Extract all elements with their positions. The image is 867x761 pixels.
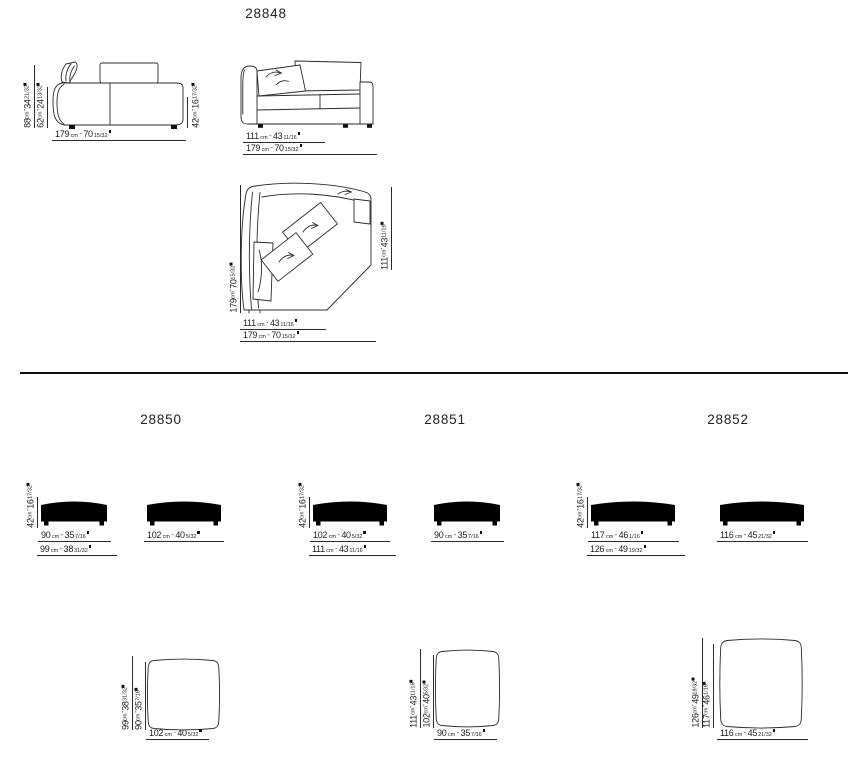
dim-part: 24 xyxy=(36,99,46,108)
dim-part: 7/16 xyxy=(468,534,479,540)
dim-ottoman-height: 42cm-1617/32 xyxy=(573,483,588,528)
dim-part: cm xyxy=(704,707,710,714)
dim-part: 90 xyxy=(134,721,144,730)
dim-part: 70 xyxy=(83,129,92,139)
dim-ottoman-width: 102cm-405/32 xyxy=(144,529,224,542)
dim-part: 11/16 xyxy=(283,135,296,141)
ottoman-side-view-drawing xyxy=(40,497,108,528)
inch-mark xyxy=(773,729,776,732)
dim-part: 46 xyxy=(619,530,628,540)
dim-part: 179 xyxy=(55,129,69,139)
dim-part: 11/16 xyxy=(382,225,388,238)
dim-part: cm xyxy=(329,534,336,540)
dim-part: cm xyxy=(25,111,31,118)
dim-part: 40 xyxy=(341,530,350,540)
dim-part: 111 xyxy=(312,544,325,554)
dim-part: cm xyxy=(578,511,584,518)
dim-part: 11/16 xyxy=(349,548,362,554)
ottoman-side-view-drawing xyxy=(590,497,676,528)
dim-plan-depth-inner: 117cm-461/16 xyxy=(699,644,714,728)
dim-part: 40 xyxy=(422,695,432,704)
dim-plan-right-side: 111cm-4311/16 xyxy=(377,187,392,270)
inch-mark xyxy=(299,483,302,486)
dim-part: 111 xyxy=(380,257,390,270)
dim-part: - xyxy=(335,546,337,553)
dim-part: 17/32 xyxy=(28,486,34,500)
inch-mark xyxy=(37,83,40,86)
dim-part: 16 xyxy=(26,499,36,508)
dim-plan-bottom-outer: 179cm-7015/32 xyxy=(240,329,376,342)
dim-part: 35 xyxy=(461,728,470,738)
dim-part: 35 xyxy=(458,530,467,540)
dim-part: 35 xyxy=(134,701,144,710)
sofa-plan-view-drawing xyxy=(233,180,378,315)
dim-part: 40 xyxy=(175,530,184,540)
dim-part: cm xyxy=(71,133,78,139)
dim-part: 90 xyxy=(437,728,446,738)
ottoman-plan-view-drawing xyxy=(147,658,220,731)
inch-mark xyxy=(192,83,195,86)
dim-part: 70 xyxy=(274,143,283,153)
inch-mark xyxy=(644,545,647,548)
inch-mark xyxy=(87,531,90,534)
dim-ottoman-total-width: 99cm-3831/32 xyxy=(37,543,117,556)
model-number-28850: 28850 xyxy=(138,412,184,427)
inch-mark xyxy=(480,531,483,534)
inch-mark xyxy=(410,680,413,683)
dim-part: 17/32 xyxy=(193,86,199,100)
inch-mark xyxy=(773,531,776,534)
dim-part: 99 xyxy=(40,544,49,554)
inch-mark xyxy=(27,483,30,486)
dim-part: - xyxy=(744,532,746,539)
dim-part: - xyxy=(379,248,386,250)
inch-mark xyxy=(703,682,706,685)
dim-part: cm xyxy=(260,135,267,141)
dim-part: cm xyxy=(123,713,129,720)
dim-ottoman-seat-width: 117cm-461/16 xyxy=(588,529,679,542)
dim-part: 43 xyxy=(409,696,419,705)
inch-mark xyxy=(109,130,112,133)
dim-part: - xyxy=(337,532,339,539)
dim-part: 16 xyxy=(191,99,201,108)
inch-mark xyxy=(300,144,303,147)
inch-mark xyxy=(298,132,301,135)
inch-mark xyxy=(577,483,580,486)
inch-mark xyxy=(381,222,384,225)
dim-part: 7/16 xyxy=(471,732,482,738)
dim-part: - xyxy=(120,711,127,713)
inch-mark xyxy=(89,545,92,548)
dim-part: 21/32 xyxy=(25,86,31,100)
dim-part: 16 xyxy=(298,499,308,508)
dim-part: cm xyxy=(165,732,172,738)
dim-part: cm xyxy=(259,334,266,340)
dim-ottoman-seat-width: 90cm-357/16 xyxy=(38,529,111,542)
sofa-corner-element-drawing xyxy=(240,58,376,128)
dim-part: 17/32 xyxy=(300,486,306,500)
dim-part: 117 xyxy=(702,715,712,728)
dim-part: 102 xyxy=(422,714,432,728)
inch-mark xyxy=(363,531,366,534)
ottoman-side-view-drawing xyxy=(146,497,222,528)
dim-front-width: 179cm-7015/32 xyxy=(52,128,186,141)
dim-part: 38 xyxy=(121,701,131,710)
dim-part: - xyxy=(266,320,268,327)
dim-part: 19/32 xyxy=(693,681,699,695)
dim-part: cm xyxy=(262,147,269,153)
dim-part: 116 xyxy=(720,530,733,540)
dim-part: 21/32 xyxy=(758,534,772,540)
dim-part: 5/32 xyxy=(352,534,363,540)
dim-part: cm xyxy=(424,707,430,714)
dim-ottoman-width: 90cm-357/16 xyxy=(431,529,504,542)
dim-part: 38 xyxy=(64,544,73,554)
dim-corner-depth: 111cm-4311/16 xyxy=(243,130,325,143)
dim-part: - xyxy=(25,509,32,511)
dim-part: 46 xyxy=(702,695,712,704)
dim-part: - xyxy=(744,730,746,737)
dim-part: 42 xyxy=(191,119,201,128)
dim-part: cm xyxy=(28,511,34,518)
sofa-front-view-drawing xyxy=(52,61,184,130)
ottoman-side-view-drawing xyxy=(312,497,388,528)
dim-part: cm xyxy=(257,322,264,328)
dim-front-back-height: 62cm-2413/32 xyxy=(33,83,48,128)
dim-part: - xyxy=(79,131,81,138)
dim-part: - xyxy=(35,109,42,111)
dim-ottoman-seat-width: 102cm-405/32 xyxy=(310,529,390,542)
dim-ottoman-total-width: 126cm-4919/32 xyxy=(587,543,685,556)
dim-part: - xyxy=(269,133,271,140)
dim-part: 49 xyxy=(618,544,627,554)
dim-ottoman-height: 42cm-1617/32 xyxy=(23,483,38,528)
inch-mark xyxy=(197,531,200,534)
section-divider xyxy=(20,372,848,374)
dim-part: - xyxy=(267,332,269,339)
dim-part: 5/32 xyxy=(186,534,197,540)
dim-part: - xyxy=(408,706,415,708)
dim-part: - xyxy=(173,730,175,737)
dim-part: 15/32 xyxy=(285,147,299,153)
dim-part: - xyxy=(60,546,62,553)
dim-part: - xyxy=(457,730,459,737)
dim-part: cm xyxy=(735,534,742,540)
dim-part: 17/32 xyxy=(578,486,584,500)
dim-part: 43 xyxy=(270,318,279,328)
inch-mark xyxy=(364,545,367,548)
model-number-28852: 28852 xyxy=(705,412,751,427)
dim-ottoman-width: 116cm-4521/32 xyxy=(717,529,808,542)
dim-part: 15/32 xyxy=(282,334,296,340)
dim-part: 117 xyxy=(591,530,604,540)
dim-part: cm xyxy=(411,708,417,715)
dim-part: 42 xyxy=(576,519,586,528)
dim-part: cm xyxy=(51,548,58,554)
dim-part: cm xyxy=(693,707,699,714)
dim-part: - xyxy=(614,546,616,553)
dim-part: cm xyxy=(606,534,613,540)
dim-plan-left-side: 179cm-7015/32 xyxy=(226,185,241,313)
dim-part: cm xyxy=(445,534,452,540)
dim-part: - xyxy=(454,532,456,539)
dim-part: 43 xyxy=(273,131,282,141)
dim-part: 5/32 xyxy=(424,684,430,695)
dim-part: 111 xyxy=(409,715,419,728)
inch-mark xyxy=(295,319,298,322)
dim-part: 90 xyxy=(434,530,443,540)
dim-part: 1/16 xyxy=(704,685,710,696)
inch-mark xyxy=(24,83,27,86)
dim-front-seat-height: 42cm-1617/32 xyxy=(187,83,202,128)
ottoman-plan-view-drawing xyxy=(435,649,500,728)
dim-part: 99 xyxy=(121,721,131,730)
dim-part: 111 xyxy=(246,131,259,141)
inch-mark xyxy=(122,685,125,688)
dim-part: 88 xyxy=(23,119,33,128)
dim-part: 31/32 xyxy=(74,548,88,554)
dim-part: - xyxy=(171,532,173,539)
ottoman-side-view-drawing xyxy=(433,497,501,528)
dim-part: 11/16 xyxy=(280,322,293,328)
dim-part: 102 xyxy=(313,530,327,540)
dim-plan-width: 102cm-405/32 xyxy=(146,727,209,740)
dim-part: 62 xyxy=(36,119,46,128)
dim-part: - xyxy=(701,705,708,707)
inch-mark xyxy=(199,729,202,732)
dim-part: 21/32 xyxy=(758,732,772,738)
dim-part: 31/32 xyxy=(123,688,129,702)
dim-part: cm xyxy=(448,732,455,738)
ottoman-side-view-drawing xyxy=(719,497,805,528)
dim-part: 45 xyxy=(748,728,757,738)
dim-part: cm xyxy=(38,111,44,118)
inch-mark xyxy=(483,729,486,732)
dim-part: 111 xyxy=(243,318,256,328)
dim-corner-width: 179cm-7015/32 xyxy=(243,142,377,155)
dim-part: - xyxy=(421,704,428,706)
dim-part: 5/32 xyxy=(188,732,199,738)
inch-mark xyxy=(135,688,138,691)
dim-part: 45 xyxy=(748,530,757,540)
dim-part: 179 xyxy=(229,299,239,313)
dim-ottoman-total-width: 111cm-4311/16 xyxy=(309,543,396,556)
dim-plan-width: 90cm-357/16 xyxy=(434,727,497,740)
dim-part: 126 xyxy=(590,544,604,554)
dim-part: cm xyxy=(326,548,333,554)
dim-part: - xyxy=(22,109,29,111)
dim-part: 179 xyxy=(243,330,257,340)
inch-mark xyxy=(641,531,644,534)
dim-part: cm xyxy=(163,534,170,540)
dim-plan-width: 116cm-4521/32 xyxy=(717,727,808,740)
dim-part: 102 xyxy=(147,530,161,540)
dim-part: 102 xyxy=(149,728,163,738)
dim-part: 7/16 xyxy=(75,534,86,540)
dim-part: cm xyxy=(52,534,59,540)
dim-part: - xyxy=(575,509,582,511)
dim-part: 11/16 xyxy=(411,683,417,696)
dim-part: 15/32 xyxy=(94,133,108,139)
dim-part: 70 xyxy=(229,280,239,289)
dim-part: 13/32 xyxy=(38,86,44,100)
dim-ottoman-height: 42cm-1617/32 xyxy=(295,483,310,528)
dim-part: - xyxy=(615,532,617,539)
dim-part: 1/16 xyxy=(629,534,640,540)
dim-part: 35 xyxy=(65,530,74,540)
model-number-28851: 28851 xyxy=(422,412,468,427)
dim-part: 16 xyxy=(576,499,586,508)
dim-part: 90 xyxy=(41,530,50,540)
dim-part: cm xyxy=(136,713,142,720)
dim-plan-bottom-inner: 111cm-4311/16 xyxy=(240,317,326,330)
dim-part: 70 xyxy=(271,330,280,340)
dim-part: 116 xyxy=(720,728,733,738)
dim-part: - xyxy=(690,704,697,706)
dim-part: 19/32 xyxy=(629,548,643,554)
dim-part: 15/32 xyxy=(231,266,237,280)
dim-part: 34 xyxy=(23,99,33,108)
dim-plan-depth-inner: 102cm-405/32 xyxy=(419,655,434,728)
dim-part: 43 xyxy=(339,544,348,554)
dim-part: cm xyxy=(382,250,388,257)
spec-sheet-page: 28848 xyxy=(0,0,867,761)
dim-part: cm xyxy=(606,548,613,554)
dim-part: - xyxy=(297,509,304,511)
dim-part: 7/16 xyxy=(136,691,142,702)
dim-part: 40 xyxy=(177,728,186,738)
dim-part: 43 xyxy=(380,238,390,247)
dim-part: cm xyxy=(231,292,237,299)
model-number-28848: 28848 xyxy=(243,6,289,21)
dim-part: cm xyxy=(193,111,199,118)
dim-part: 179 xyxy=(246,143,260,153)
dim-plan-depth-inner: 90cm-357/16 xyxy=(131,662,146,730)
ottoman-plan-view-drawing xyxy=(719,638,803,729)
dim-part: - xyxy=(228,289,235,291)
inch-mark xyxy=(297,331,300,334)
dim-part: - xyxy=(270,145,272,152)
dim-part: - xyxy=(190,109,197,111)
dim-part: cm xyxy=(735,732,742,738)
dim-part: cm xyxy=(300,511,306,518)
dim-part: 42 xyxy=(298,519,308,528)
dim-part: 42 xyxy=(26,519,36,528)
dim-part: - xyxy=(61,532,63,539)
